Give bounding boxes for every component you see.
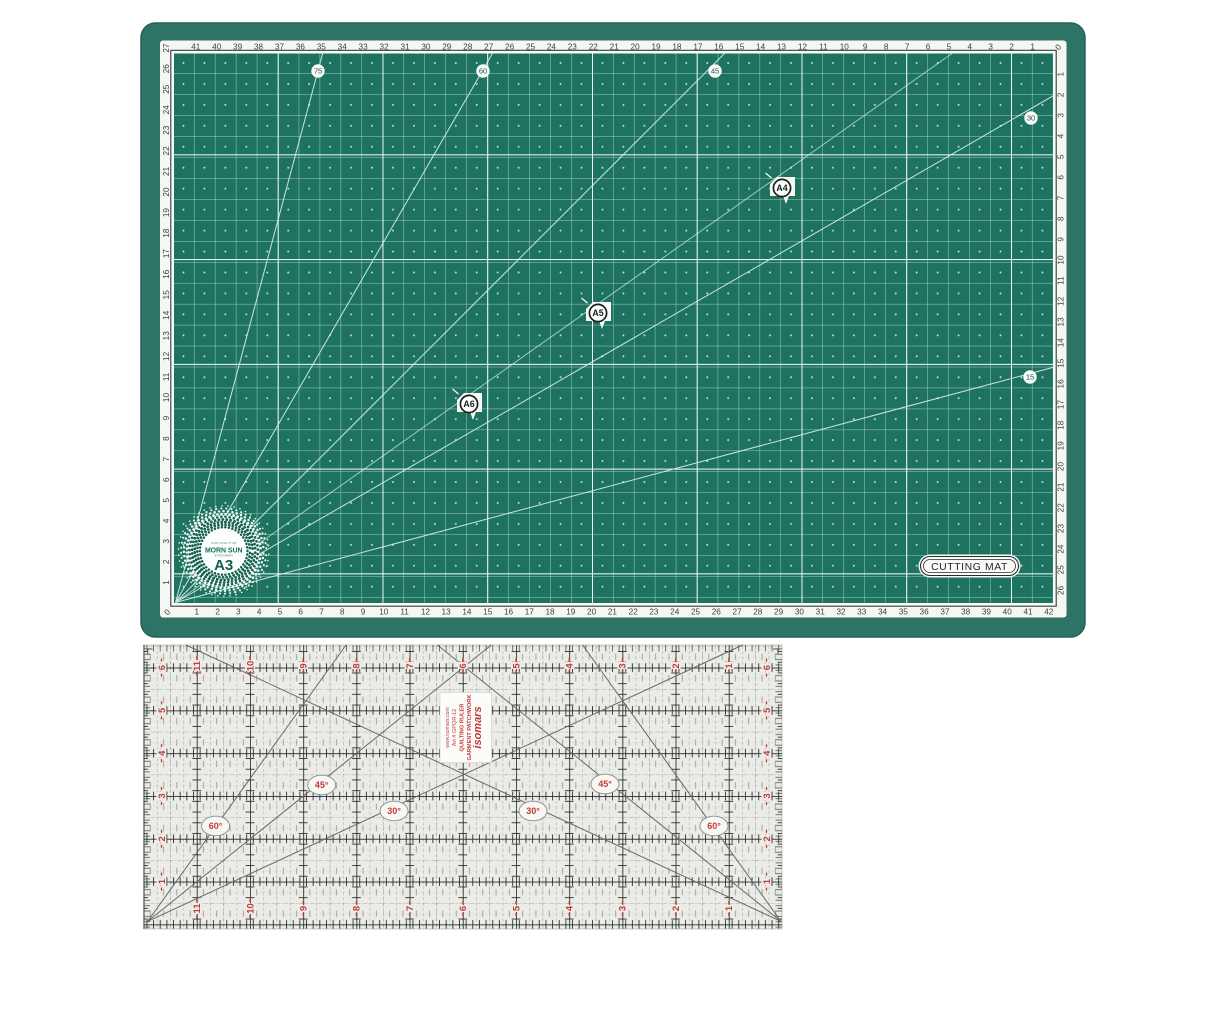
svg-text:18: 18 (162, 228, 171, 238)
svg-text:16: 16 (162, 269, 171, 279)
svg-text:14: 14 (462, 608, 472, 617)
svg-text:29: 29 (774, 608, 784, 617)
svg-text:3: 3 (618, 663, 629, 668)
svg-text:24: 24 (547, 43, 557, 52)
svg-text:6: 6 (1057, 175, 1066, 180)
svg-text:40: 40 (212, 43, 222, 52)
svg-text:1: 1 (724, 905, 735, 911)
svg-text:A6: A6 (463, 399, 474, 409)
svg-text:26: 26 (505, 43, 515, 52)
svg-text:15: 15 (162, 290, 171, 300)
svg-text:9: 9 (299, 663, 310, 668)
svg-text:6: 6 (926, 43, 931, 52)
svg-text:4: 4 (257, 608, 262, 617)
svg-text:24: 24 (670, 608, 680, 617)
svg-text:32: 32 (836, 608, 846, 617)
svg-text:2: 2 (1057, 92, 1066, 97)
svg-text:29: 29 (442, 43, 452, 52)
svg-text:17: 17 (693, 43, 703, 52)
svg-text:75: 75 (314, 67, 322, 76)
svg-text:13: 13 (777, 43, 787, 52)
svg-text:13: 13 (1057, 317, 1066, 327)
svg-text:1: 1 (157, 878, 168, 884)
svg-text:2: 2 (215, 608, 220, 617)
svg-text:4: 4 (762, 750, 773, 756)
svg-text:41: 41 (1023, 608, 1033, 617)
svg-text:3: 3 (988, 43, 993, 52)
svg-text:6: 6 (162, 477, 171, 482)
svg-text:1: 1 (195, 608, 200, 617)
svg-text:CUTTING MAT: CUTTING MAT (931, 562, 1008, 573)
svg-text:24: 24 (1057, 544, 1066, 554)
svg-text:31: 31 (816, 608, 826, 617)
svg-text:10: 10 (162, 393, 171, 403)
svg-text:26: 26 (1057, 585, 1066, 595)
svg-text:10: 10 (245, 661, 256, 672)
svg-text:14: 14 (1057, 338, 1066, 348)
svg-text:11: 11 (819, 43, 828, 52)
svg-text:38: 38 (254, 43, 264, 52)
svg-text:25: 25 (1057, 565, 1066, 575)
svg-text:11: 11 (1057, 276, 1066, 285)
svg-text:20: 20 (162, 187, 171, 197)
svg-text:25: 25 (526, 43, 536, 52)
svg-text:5: 5 (1057, 154, 1066, 159)
svg-text:20: 20 (631, 43, 641, 52)
svg-text:19: 19 (162, 208, 171, 218)
svg-text:3: 3 (762, 793, 773, 798)
svg-text:6: 6 (458, 663, 469, 668)
svg-text:22: 22 (629, 608, 639, 617)
svg-text:3: 3 (157, 793, 168, 798)
svg-text:8: 8 (162, 436, 171, 441)
svg-text:11: 11 (192, 903, 203, 914)
svg-text:30°: 30° (387, 806, 401, 816)
svg-text:21: 21 (610, 43, 620, 52)
svg-text:45°: 45° (598, 779, 612, 789)
svg-text:60: 60 (479, 67, 487, 76)
svg-text:8: 8 (884, 43, 889, 52)
svg-text:7: 7 (162, 456, 171, 461)
svg-text:35: 35 (899, 608, 909, 617)
svg-text:19: 19 (566, 608, 576, 617)
svg-text:39: 39 (982, 608, 992, 617)
svg-text:8: 8 (340, 608, 345, 617)
svg-text:10: 10 (1057, 255, 1066, 265)
svg-text:41: 41 (191, 43, 201, 52)
svg-text:4: 4 (1057, 133, 1066, 138)
svg-text:34: 34 (878, 608, 888, 617)
svg-text:17: 17 (1057, 400, 1066, 410)
svg-text:18: 18 (545, 608, 555, 617)
svg-text:37: 37 (940, 608, 950, 617)
svg-text:21: 21 (162, 166, 171, 176)
svg-text:8: 8 (352, 663, 363, 668)
svg-text:5: 5 (762, 707, 773, 713)
svg-text:3: 3 (1057, 113, 1066, 118)
svg-text:9: 9 (361, 608, 366, 617)
svg-text:5: 5 (947, 43, 952, 52)
svg-text:1: 1 (762, 878, 773, 884)
svg-text:16: 16 (714, 43, 724, 52)
svg-text:4: 4 (157, 750, 168, 756)
svg-text:18: 18 (672, 43, 682, 52)
svg-text:11: 11 (162, 372, 171, 381)
svg-text:4: 4 (968, 43, 973, 52)
svg-text:2: 2 (1009, 43, 1014, 52)
svg-text:8: 8 (352, 906, 363, 911)
svg-text:28: 28 (753, 608, 763, 617)
svg-text:7: 7 (405, 663, 416, 668)
svg-text:2: 2 (157, 836, 168, 841)
svg-text:12: 12 (421, 608, 431, 617)
svg-text:9: 9 (1057, 237, 1066, 242)
svg-text:7: 7 (405, 906, 416, 911)
svg-text:22: 22 (162, 146, 171, 156)
svg-text:33: 33 (857, 608, 867, 617)
svg-text:9: 9 (863, 43, 868, 52)
svg-text:24: 24 (162, 105, 171, 115)
svg-text:11: 11 (400, 608, 409, 617)
svg-text:23: 23 (568, 43, 578, 52)
svg-text:21: 21 (1057, 482, 1066, 492)
svg-text:18: 18 (1057, 420, 1066, 430)
svg-text:JUST FOLD IT UP: JUST FOLD IT UP (211, 541, 237, 545)
svg-text:30: 30 (795, 608, 805, 617)
svg-text:23: 23 (162, 125, 171, 135)
svg-text:3: 3 (162, 539, 171, 544)
svg-text:23: 23 (649, 608, 659, 617)
svg-text:15: 15 (1026, 373, 1034, 382)
svg-text:11: 11 (192, 660, 203, 671)
svg-text:6: 6 (298, 608, 303, 617)
svg-text:45: 45 (711, 67, 719, 76)
svg-text:13: 13 (442, 608, 452, 617)
svg-text:27: 27 (162, 43, 171, 53)
svg-text:60°: 60° (209, 821, 223, 831)
svg-text:6: 6 (762, 665, 773, 670)
svg-text:10: 10 (245, 903, 256, 914)
svg-text:20: 20 (1057, 462, 1066, 472)
svg-text:27: 27 (484, 43, 494, 52)
svg-text:60°: 60° (707, 821, 721, 831)
svg-text:Art # GPQR-12: Art # GPQR-12 (452, 709, 458, 746)
svg-text:12: 12 (162, 351, 171, 361)
svg-text:2: 2 (671, 906, 682, 911)
svg-text:5: 5 (278, 608, 283, 617)
svg-text:7: 7 (905, 43, 910, 52)
svg-text:2: 2 (762, 836, 773, 841)
svg-text:25: 25 (162, 84, 171, 94)
svg-text:12: 12 (1057, 296, 1066, 306)
svg-text:www.isomars.com: www.isomars.com (445, 707, 451, 747)
svg-text:GARMENT PATCHWORK: GARMENT PATCHWORK (467, 695, 473, 761)
svg-text:3: 3 (236, 608, 241, 617)
svg-text:19: 19 (1057, 441, 1066, 451)
svg-text:7: 7 (319, 608, 324, 617)
svg-text:4: 4 (565, 663, 576, 669)
svg-text:30: 30 (1027, 114, 1035, 123)
svg-text:13: 13 (162, 331, 171, 341)
svg-text:QUILTING RULER: QUILTING RULER (460, 704, 466, 752)
svg-text:42: 42 (1044, 608, 1054, 617)
svg-text:9: 9 (299, 906, 310, 911)
svg-text:6: 6 (458, 906, 469, 911)
svg-text:1: 1 (162, 580, 171, 585)
svg-text:39: 39 (233, 43, 243, 52)
svg-text:27: 27 (733, 608, 743, 617)
svg-text:30: 30 (421, 43, 431, 52)
svg-text:14: 14 (162, 310, 171, 320)
svg-text:A4: A4 (776, 183, 787, 193)
svg-text:22: 22 (1057, 503, 1066, 513)
svg-text:38: 38 (961, 608, 971, 617)
svg-text:23: 23 (1057, 524, 1066, 534)
svg-text:36: 36 (920, 608, 930, 617)
svg-text:1: 1 (1057, 71, 1066, 76)
svg-text:9: 9 (162, 415, 171, 420)
svg-text:17: 17 (525, 608, 535, 617)
svg-text:2: 2 (162, 559, 171, 564)
svg-text:5: 5 (162, 497, 171, 502)
svg-text:22: 22 (589, 43, 599, 52)
svg-text:28: 28 (463, 43, 473, 52)
svg-text:4: 4 (565, 905, 576, 911)
svg-text:45°: 45° (315, 780, 329, 790)
svg-text:4: 4 (162, 518, 171, 523)
svg-text:26: 26 (712, 608, 722, 617)
svg-text:14: 14 (756, 43, 766, 52)
svg-text:5: 5 (511, 663, 522, 669)
svg-text:1: 1 (1030, 43, 1035, 52)
svg-text:34: 34 (338, 43, 348, 52)
svg-text:10: 10 (840, 43, 850, 52)
svg-text:1: 1 (724, 663, 735, 669)
svg-text:32: 32 (380, 43, 390, 52)
svg-text:3: 3 (618, 906, 629, 911)
svg-text:15: 15 (735, 43, 745, 52)
svg-text:33: 33 (359, 43, 369, 52)
svg-text:17: 17 (162, 249, 171, 259)
svg-text:20: 20 (587, 608, 597, 617)
svg-text:37: 37 (275, 43, 285, 52)
svg-text:7: 7 (1057, 195, 1066, 200)
svg-text:19: 19 (651, 43, 661, 52)
svg-text:16: 16 (504, 608, 514, 617)
svg-text:16: 16 (1057, 379, 1066, 389)
svg-text:36: 36 (296, 43, 306, 52)
svg-text:A3: A3 (214, 557, 233, 574)
svg-text:40: 40 (1003, 608, 1013, 617)
svg-text:5: 5 (511, 905, 522, 911)
svg-text:30°: 30° (526, 806, 540, 816)
svg-text:35: 35 (317, 43, 327, 52)
svg-text:15: 15 (483, 608, 493, 617)
svg-text:26: 26 (162, 64, 171, 74)
svg-text:31: 31 (400, 43, 410, 52)
svg-text:21: 21 (608, 608, 618, 617)
svg-text:6: 6 (157, 665, 168, 670)
svg-text:2: 2 (671, 663, 682, 668)
svg-text:12: 12 (798, 43, 808, 52)
svg-text:A5: A5 (592, 308, 603, 318)
svg-text:15: 15 (1057, 358, 1066, 368)
svg-text:8: 8 (1057, 216, 1066, 221)
svg-text:25: 25 (691, 608, 701, 617)
svg-text:5: 5 (157, 707, 168, 713)
svg-text:10: 10 (379, 608, 389, 617)
svg-text:isomars: isomars (472, 706, 484, 748)
